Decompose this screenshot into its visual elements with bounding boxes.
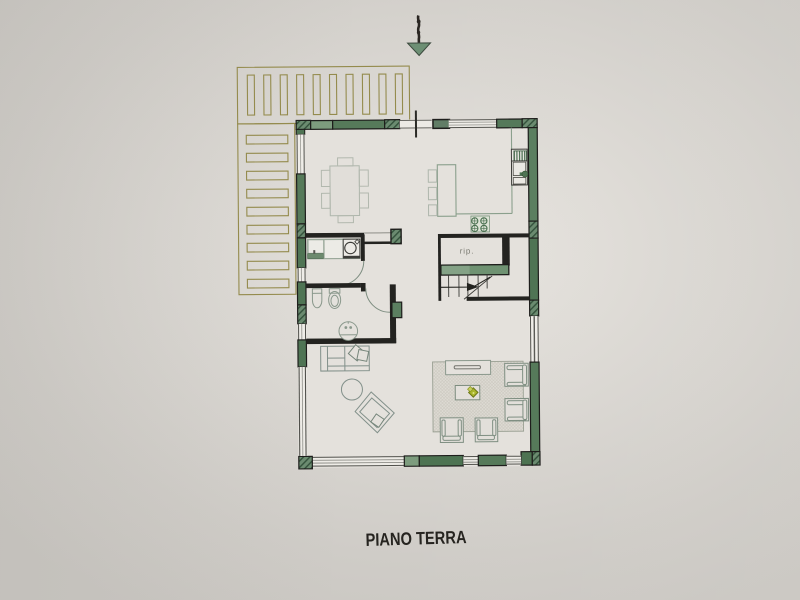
svg-text:PIANO TERRA: PIANO TERRA xyxy=(365,527,467,550)
svg-text:rip.: rip. xyxy=(460,247,475,256)
